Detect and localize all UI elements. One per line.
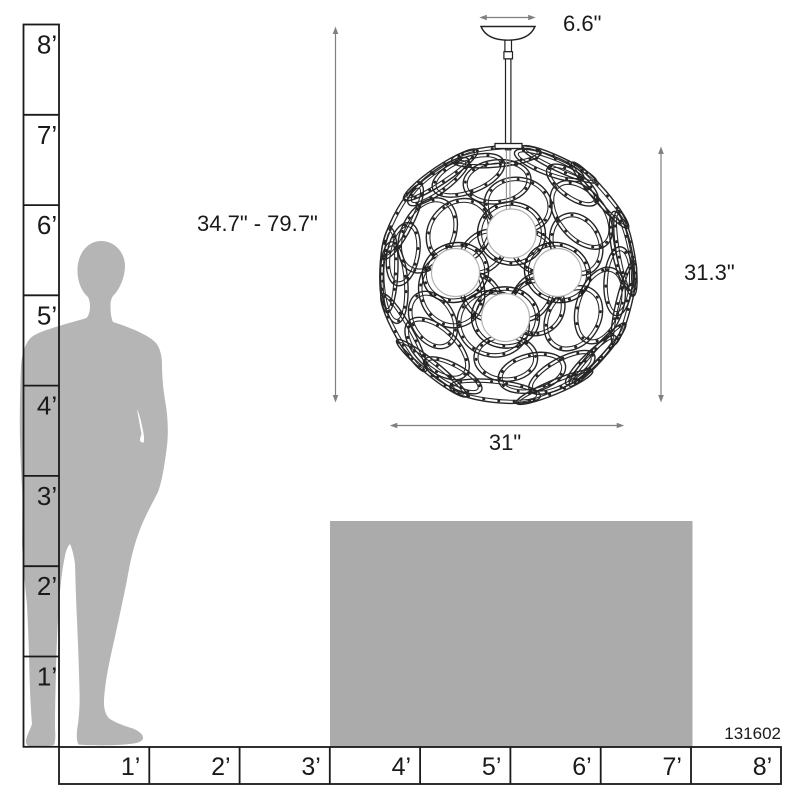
svg-text:31": 31" (489, 430, 521, 455)
svg-text:3’: 3’ (37, 481, 57, 511)
svg-text:4’: 4’ (392, 753, 411, 781)
svg-text:1’: 1’ (121, 753, 140, 781)
svg-text:34.7" - 79.7": 34.7" - 79.7" (197, 211, 318, 236)
svg-text:5’: 5’ (482, 753, 501, 781)
svg-text:8’: 8’ (753, 753, 772, 781)
svg-text:8’: 8’ (37, 30, 57, 60)
svg-text:4’: 4’ (37, 391, 57, 421)
svg-text:7’: 7’ (37, 120, 57, 150)
svg-text:5’: 5’ (37, 300, 57, 330)
svg-text:131602: 131602 (724, 724, 781, 743)
svg-text:1’: 1’ (37, 662, 57, 692)
svg-text:6’: 6’ (37, 210, 57, 240)
svg-text:31.3": 31.3" (684, 260, 735, 285)
svg-text:6.6": 6.6" (563, 11, 601, 36)
svg-text:3’: 3’ (301, 753, 320, 781)
svg-text:2’: 2’ (211, 753, 230, 781)
svg-text:2’: 2’ (37, 571, 57, 601)
svg-text:6’: 6’ (572, 753, 591, 781)
svg-text:7’: 7’ (663, 753, 682, 781)
